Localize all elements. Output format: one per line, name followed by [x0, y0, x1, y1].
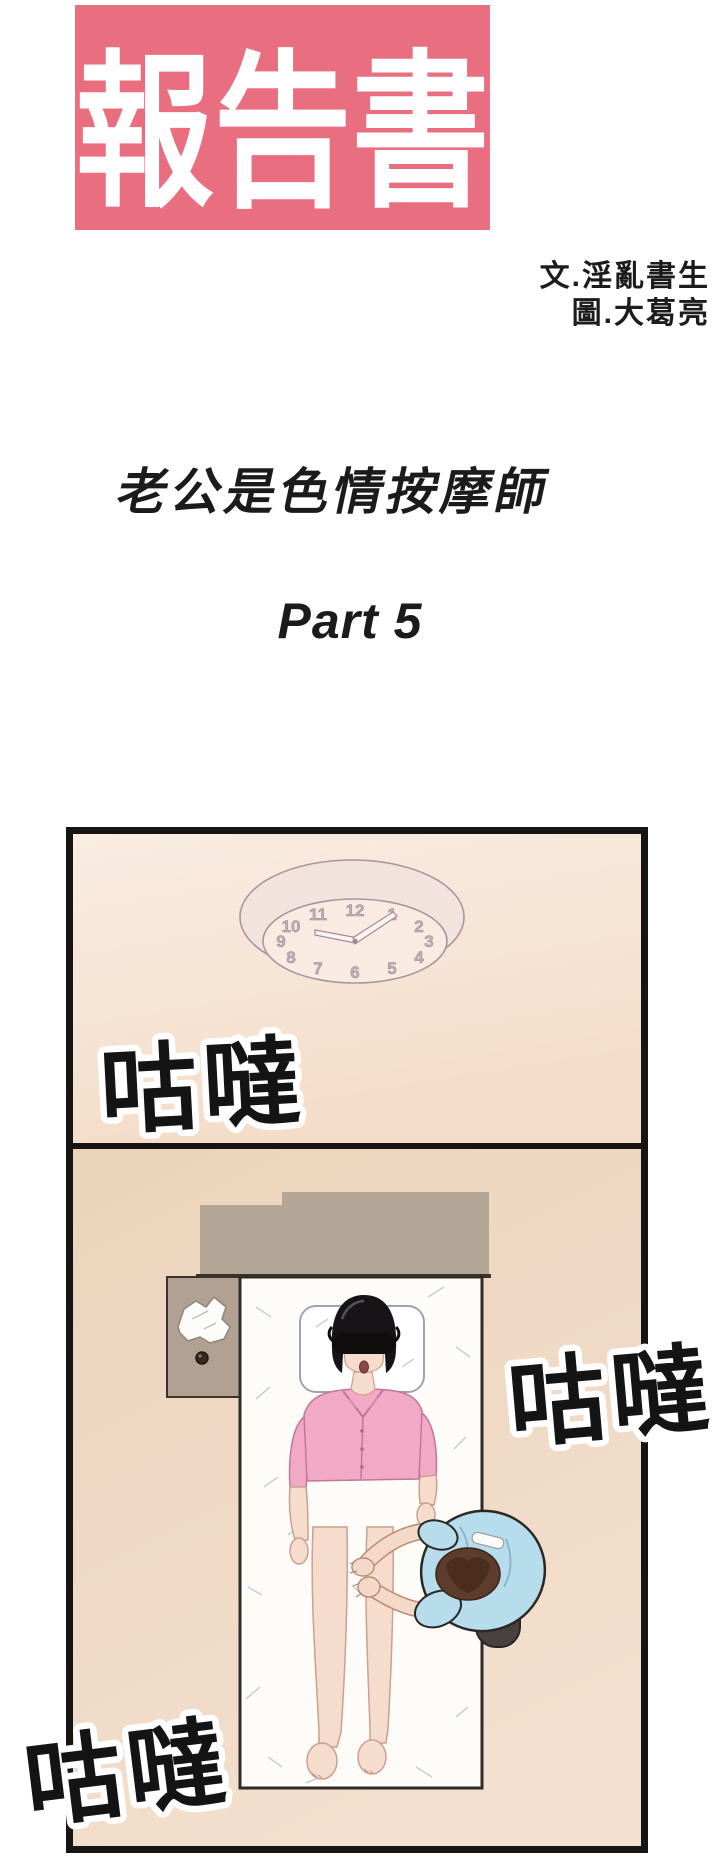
part-label: Part 5 [60, 592, 640, 650]
series-title: 報告書 [75, 0, 489, 240]
svg-text:2: 2 [414, 917, 423, 936]
svg-text:12: 12 [346, 901, 365, 920]
hand-right [290, 1538, 308, 1564]
sfx-text-2: 咕噠 [485, 1291, 720, 1488]
credit-writer: 文.淫亂書生 [540, 258, 710, 295]
sleep-mask [333, 1333, 395, 1354]
nightstand-knob [196, 1352, 208, 1364]
svg-text:10: 10 [282, 917, 301, 936]
series-title-box: 報告書 [75, 5, 490, 230]
svg-text:咕噠: 咕噠 [504, 1334, 719, 1461]
svg-text:咕噠: 咕噠 [19, 1707, 237, 1840]
svg-text:11: 11 [309, 905, 327, 924]
svg-text:8: 8 [286, 948, 295, 967]
nightstand [167, 1277, 240, 1397]
episode-title: 老公是色情按摩師 [52, 452, 617, 524]
svg-text:5: 5 [387, 959, 396, 978]
svg-text:咕噠: 咕噠 [98, 1027, 309, 1147]
sfx-text-1: 咕噠 [80, 988, 408, 1175]
mouth [360, 1361, 369, 1373]
svg-text:6: 6 [350, 963, 359, 982]
svg-text:3: 3 [424, 932, 433, 951]
svg-text:4: 4 [414, 948, 424, 967]
credits: 文.淫亂書生 圖.大葛亮 [540, 258, 710, 332]
foot-left [358, 1740, 386, 1774]
credit-artist: 圖.大葛亮 [540, 295, 710, 332]
svg-text:7: 7 [313, 959, 322, 978]
